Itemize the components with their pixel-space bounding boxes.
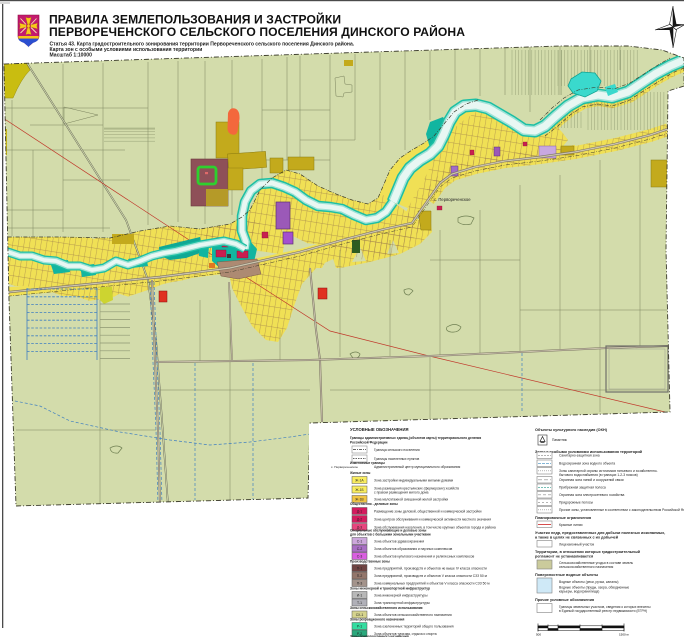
svg-text:Зоны инженерной и транспортной: Зоны инженерной и транспортной инфрастру… (350, 587, 430, 591)
svg-text:Зона инженерной инфраструктуры: Зона инженерной инфраструктуры (374, 594, 428, 598)
svg-text:регламент не устанавливается: регламент не устанавливается (535, 555, 593, 559)
svg-text:И-1: И-1 (357, 594, 363, 598)
svg-text:Санитарно-защитная зона: Санитарно-защитная зона (559, 454, 600, 458)
svg-text:Жилые зоны: Жилые зоны (349, 471, 371, 475)
svg-text:Границы административных едини: Границы административных единиц (объекто… (350, 436, 481, 440)
svg-text:Ж-1Б: Ж-1Б (355, 488, 364, 492)
svg-text:с. Первореченское: с. Первореченское (331, 465, 358, 469)
svg-text:Планировочные ограничения: Планировочные ограничения (535, 516, 591, 520)
svg-text:П-3: П-3 (357, 582, 363, 586)
svg-text:Зона транспортной инфраструкту: Зона транспортной инфраструктуры (374, 601, 430, 605)
svg-text:бытового водоснабжения (в гран: бытового водоснабжения (в границах 1-2-3… (559, 473, 638, 477)
svg-text:Зоны сельскохозяйственного исп: Зоны сельскохозяйственного использования (350, 606, 423, 610)
svg-text:Территории, в отношении которы: Территории, в отношении которых градостр… (535, 550, 641, 554)
svg-text:500: 500 (536, 633, 541, 637)
svg-text:Российской Федерации: Российской Федерации (350, 441, 387, 445)
svg-text:1500 м: 1500 м (619, 633, 629, 637)
svg-text:Административный центр муницип: Административный центр муниципального об… (374, 465, 460, 469)
svg-text:УСЛОВНЫЕ ОБОЗНАЧЕНИЯ: УСЛОВНЫЕ ОБОЗНАЧЕНИЯ (350, 427, 408, 432)
svg-text:Зона объектов культового назна: Зона объектов культового назначения и ре… (374, 555, 474, 559)
svg-text:П-2: П-2 (357, 574, 363, 578)
svg-text:Зона предприятий, производств: Зона предприятий, производств и объектов… (374, 567, 487, 571)
svg-text:Зона объектов сельскохозяйстве: Зона объектов сельскохозяйственного назн… (374, 613, 452, 617)
svg-text:Зона малоэтажной смешанной жил: Зона малоэтажной смешанной жилой застрой… (374, 498, 448, 502)
svg-text:Общественно - деловые зоны: Общественно - деловые зоны (350, 502, 398, 506)
svg-text:ПЕРВОРЕЧЕНСКОГО СЕЛЬСКОГО ПОСЕ: ПЕРВОРЕЧЕНСКОГО СЕЛЬСКОГО ПОСЕЛЕНИЯ ДИНС… (49, 24, 465, 39)
svg-text:Водоохранная зона водного объе: Водоохранная зона водного объекта (559, 462, 615, 466)
svg-text:Размещение зоны деловой, общес: Размещение зоны деловой, общественной и … (374, 510, 482, 514)
svg-text:Охранная зона линий и сооружен: Охранная зона линий и сооружений связи (559, 478, 624, 482)
svg-text:Ж-1А: Ж-1А (355, 479, 364, 483)
svg-text:Граница сельского поселения: Граница сельского поселения (374, 448, 420, 452)
svg-text:Зона объектов образования и на: Зона объектов образования и научных комп… (374, 547, 453, 551)
svg-text:Охранная зона электросетевого: Охранная зона электросетевого хозяйства (559, 493, 624, 497)
svg-text:Памятник: Памятник (552, 438, 567, 442)
svg-text:Участки недр, предоставленных: Участки недр, предоставленных для добычи… (535, 531, 665, 535)
svg-text:Лицензионный участок: Лицензионный участок (559, 543, 595, 547)
svg-text:Зона центров обслуживания и ко: Зона центров обслуживания и коммерческой… (374, 518, 491, 522)
svg-text:сельскохозяйственного назначен: сельскохозяйственного назначения (559, 565, 613, 569)
svg-text:карьеры, водохранилища): карьеры, водохранилища) (559, 590, 599, 594)
svg-text:а также в целях не связанных с: а также в целях не связанных с их добыче… (535, 536, 619, 540)
svg-text:Прочие зоны, установленные в с: Прочие зоны, установленные в соответстви… (559, 508, 684, 512)
svg-text:Производственные зоны: Производственные зоны (350, 560, 390, 564)
svg-text:Зона объектов здравоохранения: Зона объектов здравоохранения (374, 540, 424, 544)
svg-text:Зона предприятий, производств: Зона предприятий, производств и объектов… (374, 574, 488, 578)
svg-text:С-2: С-2 (357, 547, 363, 551)
svg-text:Зона коммунальных предприятий: Зона коммунальных предприятий и объектов… (374, 582, 490, 586)
svg-text:Д-2: Д-2 (357, 518, 362, 522)
svg-text:Водные объекты (реки, ручьи, к: Водные объекты (реки, ручьи, каналы) (559, 580, 618, 584)
svg-text:Придорожные полосы: Придорожные полосы (559, 501, 594, 505)
svg-text:Д-1: Д-1 (357, 510, 362, 514)
svg-text:Зона застройки индивидуальными: Зона застройки индивидуальными жилыми до… (374, 479, 453, 483)
svg-text:Объекты культурного наследия (: Объекты культурного наследия (ОКН) (535, 428, 608, 432)
svg-text:в Единый государственный реест: в Единый государственный реестр недвижим… (559, 609, 647, 613)
svg-text:с. Первореченское: с. Первореченское (434, 197, 471, 202)
svg-text:Зона озелененных территорий об: Зона озелененных территорий общего польз… (374, 625, 454, 629)
svg-text:Красные линии: Красные линии (559, 523, 583, 527)
svg-text:Прибрежная защитная полоса: Прибрежная защитная полоса (559, 486, 606, 490)
svg-text:С-3: С-3 (357, 555, 363, 559)
svg-text:Р-1: Р-1 (357, 625, 362, 629)
svg-text:Т-1: Т-1 (357, 601, 362, 605)
svg-text:Прочие условные обозначения: Прочие условные обозначения (535, 598, 594, 602)
svg-text:с правом размещения жилого дом: с правом размещения жилого дома (374, 491, 429, 495)
svg-text:Зоны рекреационного назначения: Зоны рекреационного назначения (350, 618, 405, 622)
svg-text:Масштаб 1:10000: Масштаб 1:10000 (50, 52, 93, 59)
svg-text:П-1: П-1 (357, 567, 363, 571)
svg-text:С-1: С-1 (357, 540, 363, 544)
svg-text:Поверхностные водные объекты: Поверхностные водные объекты (535, 573, 598, 577)
svg-text:для объектов с большими земель: для объектов с большими земельными участ… (350, 533, 431, 537)
